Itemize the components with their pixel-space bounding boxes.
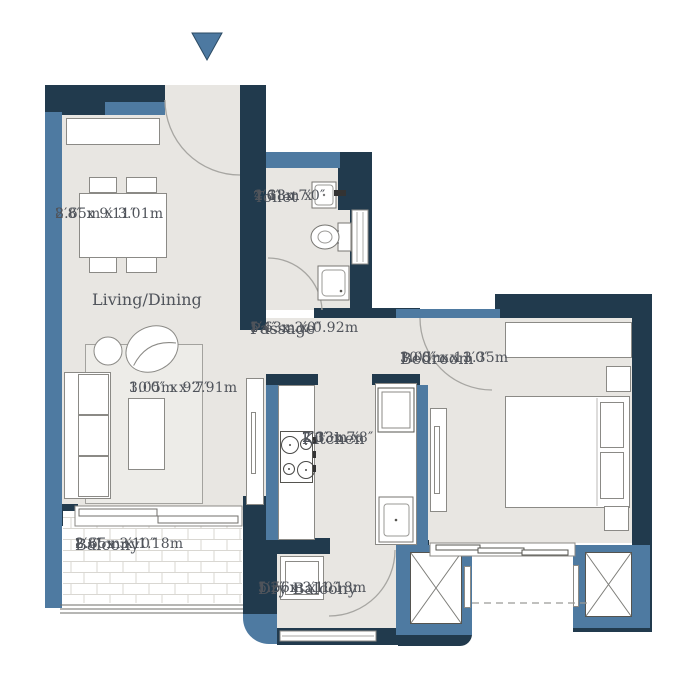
wall-kitchen-left-cap bbox=[266, 374, 318, 385]
dining-chair bbox=[89, 257, 117, 273]
dry-balcony-imperial: 5′2″ x 3′10″ bbox=[258, 580, 339, 597]
side-table bbox=[604, 506, 629, 531]
wall-dry-balcony-bottom bbox=[277, 628, 405, 645]
living-dining-name: Living/Dining bbox=[92, 291, 202, 310]
sofa-cushion bbox=[78, 374, 109, 415]
wall-toilet-top bbox=[266, 152, 340, 168]
pillow bbox=[600, 402, 624, 448]
storage-cabinet bbox=[66, 118, 160, 145]
wall-bedroom-left bbox=[417, 385, 428, 545]
tall-wardrobe-door bbox=[434, 426, 440, 494]
entrance-arrow bbox=[192, 33, 222, 60]
dining-chair bbox=[126, 257, 157, 273]
dining-chair bbox=[89, 177, 117, 193]
tv bbox=[251, 412, 256, 474]
kitchen-imperial: 7′0″ x 7′8″ bbox=[302, 430, 373, 447]
sofa-cushion bbox=[78, 415, 109, 456]
wall-balcony-right-round bbox=[243, 614, 277, 644]
floor-balcony bbox=[62, 510, 243, 604]
coffee-table bbox=[128, 398, 165, 470]
wall-kitchen-left bbox=[266, 385, 278, 540]
sofa-cushion bbox=[78, 456, 109, 497]
wall-top-left-inset bbox=[105, 102, 165, 115]
toilet-imperial: 4′6″ x 7′0″ bbox=[254, 189, 325, 205]
floor-plan: 2.65m x 3.01m 8′8″ x 9′11″ Living/Dining… bbox=[0, 0, 700, 700]
dining-imperial: 8′8″ x 9′11″ bbox=[55, 206, 136, 223]
balcony-imperial: 8′8″ x 3′10″ bbox=[75, 536, 156, 553]
right-shaft-vent bbox=[573, 565, 579, 607]
bedroom-imperial: 10′0″ x 11′0″ bbox=[400, 350, 490, 367]
wall-toilet-right bbox=[350, 152, 372, 318]
wall-above-bedroom-door bbox=[396, 309, 500, 318]
floor-entrance bbox=[165, 85, 240, 100]
balcony-railing bbox=[60, 605, 243, 613]
left-shaft-vent bbox=[464, 566, 471, 608]
wall-bedroom-top bbox=[495, 294, 652, 318]
living-imperial: 10′0″ x 9′7″ bbox=[129, 380, 210, 397]
left-shaft-box bbox=[410, 552, 462, 624]
wall-living-right bbox=[240, 85, 266, 330]
dining-chair bbox=[126, 177, 157, 193]
wall-dry-balcony-top bbox=[266, 538, 330, 554]
side-table bbox=[606, 366, 631, 392]
passage-imperial: 5′4″ x 3′0″ bbox=[250, 320, 321, 337]
right-shaft-box bbox=[585, 552, 632, 617]
wardrobe bbox=[505, 322, 632, 358]
pillow bbox=[600, 452, 624, 499]
wall-balcony-window-left-cap bbox=[62, 504, 78, 526]
wall-left-exterior bbox=[45, 112, 62, 608]
dining-table bbox=[79, 193, 167, 258]
kitchen-counter-right bbox=[375, 383, 417, 545]
